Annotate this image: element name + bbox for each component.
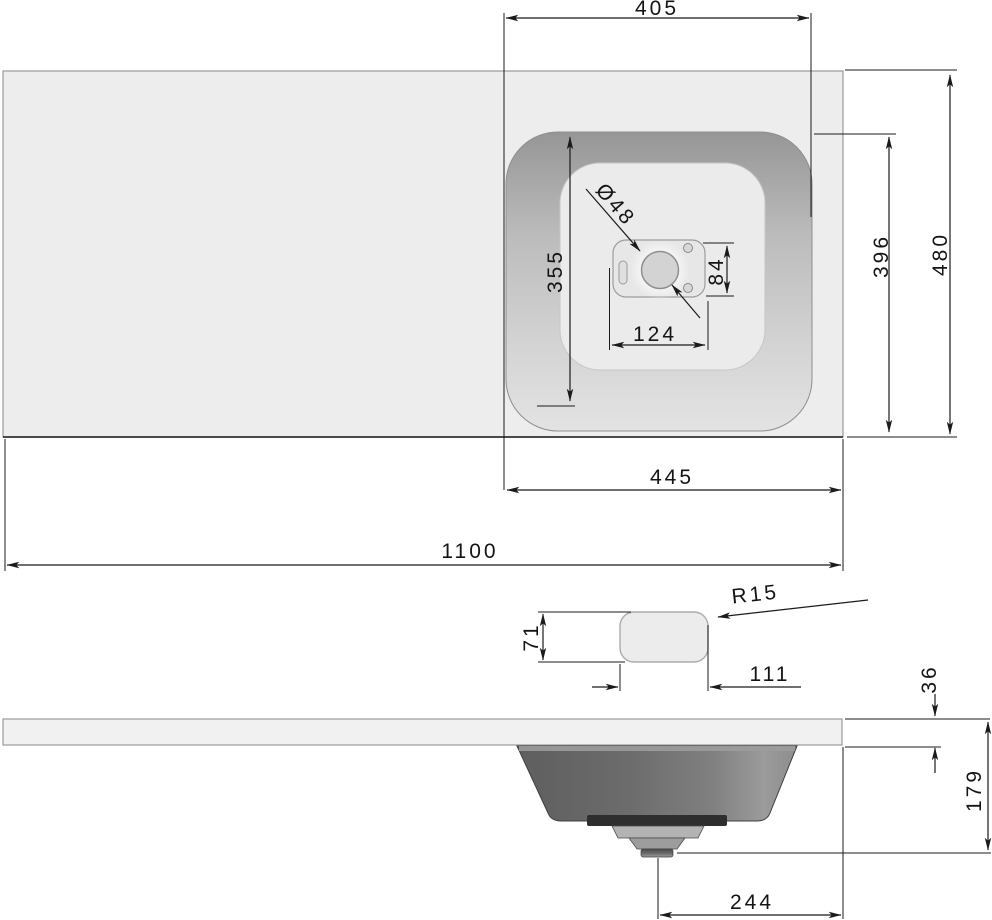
dim-basin-zone-width: 445 [507,439,843,571]
top-view: 405 480 396 355 Ø48 [3,0,957,571]
dim-label-worktop-width: 1100 [441,540,498,563]
dim-label-worktop-thickness: 36 [918,664,941,693]
dim-worktop-depth: 480 [845,70,957,437]
section-view: 36 179 244 [3,664,991,919]
drawing-svg: 405 480 396 355 Ø48 [0,0,992,920]
dim-label-worktop-depth: 480 [929,232,952,276]
drain-fitting-middle [629,838,685,849]
screw-hole-bottom [684,284,693,293]
basin-bowl-section [517,746,797,821]
dim-label-tap-hole-width: 111 [750,663,791,686]
dim-label-drain-center-to-edge: 244 [730,891,774,914]
dim-worktop-thickness: 36 [845,664,990,773]
dim-label-tap-hole-radius: R15 [730,581,780,609]
drain-outlet-cap [641,849,673,857]
worktop-section [3,719,842,745]
dim-label-overall-height: 179 [963,768,986,812]
drain-hole [642,252,679,289]
dim-label-drain-plate-width: 124 [633,323,677,346]
detail-view-tap-hole: 71 111 R15 [520,581,868,691]
dim-label-basin-inner-length: 355 [544,249,567,293]
dim-label-basin-zone-width: 445 [650,466,694,489]
overflow-slot [619,261,627,284]
dim-label-basin-cutout-depth: 396 [870,234,893,278]
screw-hole-top [684,244,693,253]
dim-worktop-width: 1100 [5,439,841,571]
dim-label-tap-hole-height: 71 [520,622,543,651]
dim-tap-hole-radius: R15 [718,581,868,617]
technical-drawing-page: 405 480 396 355 Ø48 [0,0,992,920]
tap-hole [620,612,708,662]
dim-label-drain-plate-height: 84 [705,256,728,285]
drain-fitting-upper [612,826,704,838]
drain-shadow-band [587,815,727,826]
bowl-rim-strip [519,746,795,751]
dim-label-basin-cutout-width: 405 [635,0,679,20]
dim-tap-hole-height: 71 [520,612,631,662]
